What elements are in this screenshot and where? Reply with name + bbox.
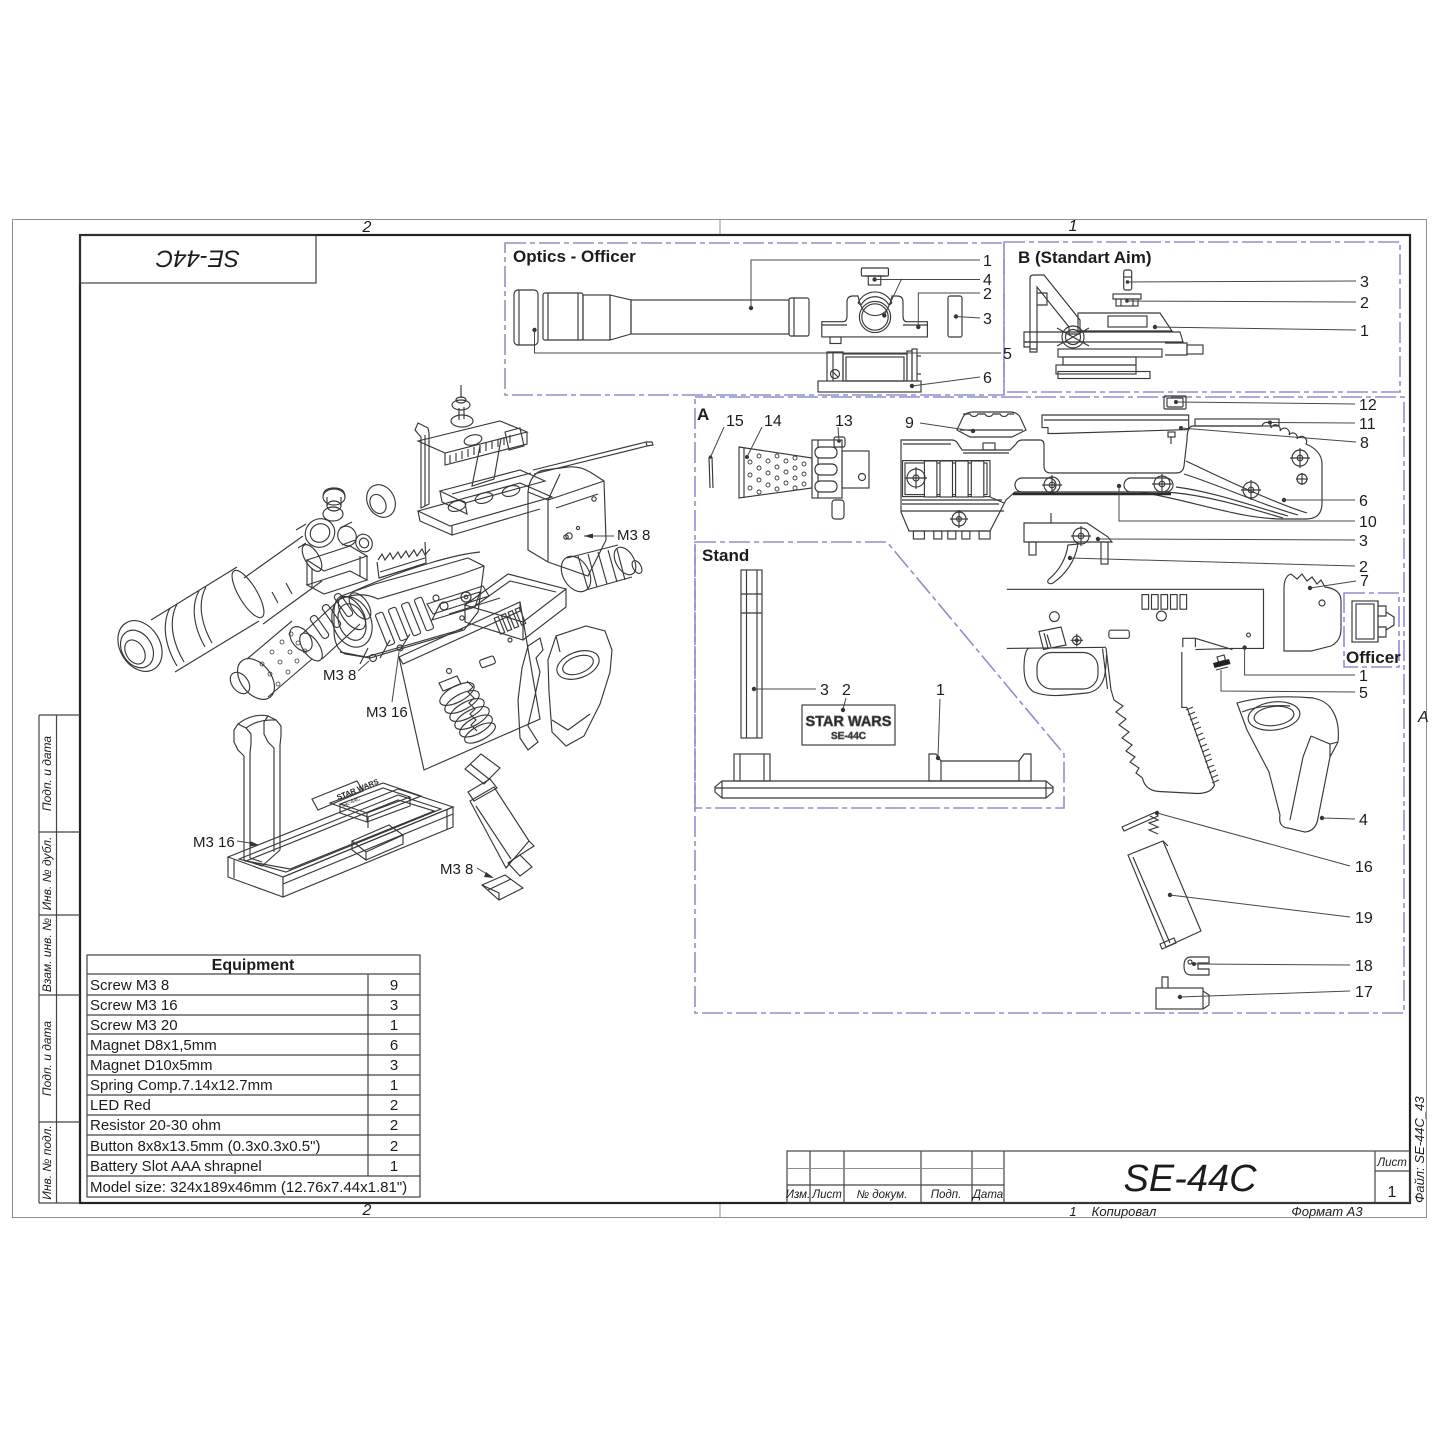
svg-text:Подп.: Подп. <box>931 1189 962 1201</box>
svg-text:1: 1 <box>390 1017 398 1034</box>
svg-text:18: 18 <box>1355 958 1373 975</box>
svg-text:1: 1 <box>936 682 945 699</box>
svg-text:3: 3 <box>390 1057 398 1074</box>
svg-text:2: 2 <box>842 682 851 699</box>
svg-text:11: 11 <box>1359 416 1376 433</box>
svg-text:16: 16 <box>1355 859 1373 876</box>
svg-text:M3 8: M3 8 <box>323 667 356 684</box>
svg-text:A: A <box>1417 709 1429 726</box>
svg-text:15: 15 <box>726 413 744 430</box>
svg-text:Resistor 20-30 ohm: Resistor 20-30 ohm <box>90 1117 221 1134</box>
svg-text:Screw M3 16: Screw M3 16 <box>90 997 178 1014</box>
svg-text:1: 1 <box>983 253 992 270</box>
svg-text:2: 2 <box>362 219 372 236</box>
svg-text:17: 17 <box>1355 984 1373 1001</box>
svg-text:19: 19 <box>1355 910 1373 927</box>
svg-text:Model size: 324x189x46mm (12.7: Model size: 324x189x46mm (12.76x7.44x1.8… <box>90 1179 407 1196</box>
svg-text:1: 1 <box>1388 1184 1397 1201</box>
svg-text:LED Red: LED Red <box>90 1097 151 1114</box>
svg-text:Equipment: Equipment <box>212 957 295 974</box>
svg-text:3: 3 <box>983 311 992 328</box>
svg-text:Подп. и дата: Подп. и дата <box>40 736 54 811</box>
svg-text:3: 3 <box>1359 533 1368 550</box>
svg-text:Изм.: Изм. <box>786 1189 811 1201</box>
svg-text:A: A <box>697 405 709 424</box>
svg-text:SE-44C: SE-44C <box>155 245 240 272</box>
svg-text:13: 13 <box>835 413 853 430</box>
svg-text:Копировал: Копировал <box>1092 1204 1157 1219</box>
svg-text:Взам. инв. №: Взам. инв. № <box>40 918 54 992</box>
svg-text:Stand: Stand <box>702 546 749 565</box>
svg-text:Лист: Лист <box>811 1189 842 1201</box>
svg-text:10: 10 <box>1359 514 1377 531</box>
svg-text:Дата: Дата <box>971 1189 1003 1201</box>
svg-text:Battery Slot AAA shrapnel: Battery Slot AAA shrapnel <box>90 1158 262 1175</box>
svg-text:STAR WARS: STAR WARS <box>806 714 892 730</box>
svg-text:7: 7 <box>1360 573 1369 590</box>
svg-text:Screw M3 20: Screw M3 20 <box>90 1017 178 1034</box>
svg-text:B (Standart Aim): B (Standart Aim) <box>1018 248 1152 267</box>
svg-text:1: 1 <box>1069 1204 1076 1219</box>
svg-text:Инв. № подл.: Инв. № подл. <box>40 1125 54 1199</box>
svg-text:M3 8: M3 8 <box>440 861 473 878</box>
svg-text:1: 1 <box>390 1158 398 1175</box>
svg-text:1: 1 <box>1360 323 1369 340</box>
svg-text:Magnet D10x5mm: Magnet D10x5mm <box>90 1057 213 1074</box>
svg-text:12: 12 <box>1359 397 1377 414</box>
svg-text:14: 14 <box>764 413 782 430</box>
svg-text:2: 2 <box>390 1117 398 1134</box>
svg-text:Screw M3 8: Screw M3 8 <box>90 977 169 994</box>
svg-text:2: 2 <box>390 1138 398 1155</box>
svg-text:3: 3 <box>390 997 398 1014</box>
svg-text:3: 3 <box>820 682 829 699</box>
svg-text:SE-44C: SE-44C <box>831 731 866 742</box>
svg-text:Officer: Officer <box>1346 648 1401 667</box>
svg-text:Инв. № дубл.: Инв. № дубл. <box>40 837 54 911</box>
svg-text:Optics - Officer: Optics - Officer <box>513 247 636 266</box>
svg-text:1: 1 <box>1069 218 1078 235</box>
svg-text:M3 8: M3 8 <box>617 527 650 544</box>
svg-text:3: 3 <box>1360 274 1369 291</box>
svg-text:№ докум.: № докум. <box>857 1189 908 1201</box>
svg-text:8: 8 <box>1360 435 1369 452</box>
svg-text:1: 1 <box>390 1077 398 1094</box>
svg-text:1: 1 <box>1359 668 1368 685</box>
svg-text:9: 9 <box>905 415 914 432</box>
svg-text:6: 6 <box>1359 493 1368 510</box>
svg-text:2: 2 <box>390 1097 398 1114</box>
svg-text:5: 5 <box>1359 685 1368 702</box>
svg-text:Spring Comp.7.14x12.7mm: Spring Comp.7.14x12.7mm <box>90 1077 273 1094</box>
svg-text:Magnet D8x1,5mm: Magnet D8x1,5mm <box>90 1037 217 1054</box>
svg-text:2: 2 <box>983 286 992 303</box>
svg-text:6: 6 <box>390 1037 398 1054</box>
svg-text:Лист: Лист <box>1376 1157 1407 1169</box>
svg-text:9: 9 <box>390 977 398 994</box>
svg-text:4: 4 <box>1359 812 1368 829</box>
svg-text:2: 2 <box>362 1202 372 1219</box>
svg-text:Подп. и дата: Подп. и дата <box>40 1021 54 1096</box>
svg-text:5: 5 <box>1003 346 1012 363</box>
svg-text:M3 16: M3 16 <box>193 834 235 851</box>
svg-text:6: 6 <box>983 370 992 387</box>
svg-text:Button 8x8x13.5mm (0.3x0.3x0.5: Button 8x8x13.5mm (0.3x0.3x0.5") <box>90 1138 320 1155</box>
svg-text:SE-44C: SE-44C <box>1123 1158 1257 1200</box>
svg-text:Формат А3: Формат А3 <box>1291 1204 1363 1219</box>
svg-text:M3 16: M3 16 <box>366 704 408 721</box>
svg-text:Файл: SE-44C_43: Файл: SE-44C_43 <box>1412 1096 1427 1203</box>
svg-text:2: 2 <box>1360 295 1369 312</box>
